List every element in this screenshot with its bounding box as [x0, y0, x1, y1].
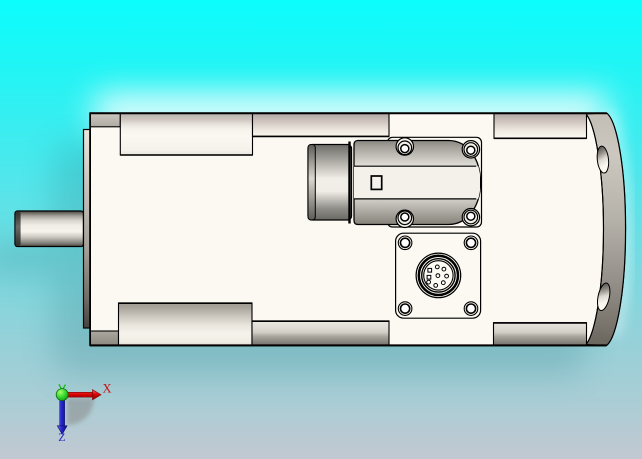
svg-text:X: X — [103, 382, 112, 396]
svg-text:Z: Z — [58, 430, 65, 444]
